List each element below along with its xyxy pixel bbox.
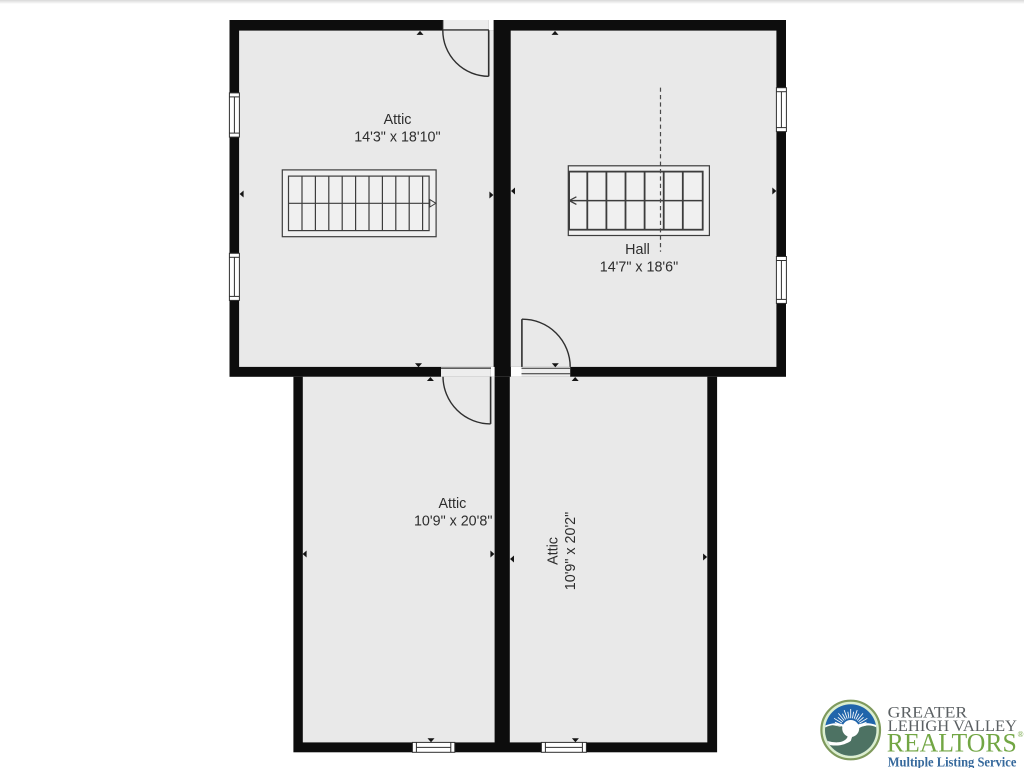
svg-text:Multiple Listing Service: Multiple Listing Service <box>888 755 1017 768</box>
svg-text:Attic: Attic <box>384 112 412 128</box>
svg-text:Attic: Attic <box>546 537 562 565</box>
svg-text:14'7" x 18'6": 14'7" x 18'6" <box>600 259 678 275</box>
svg-text:®: ® <box>1018 730 1024 739</box>
svg-text:Attic: Attic <box>438 496 466 512</box>
svg-text:14'3" x 18'10": 14'3" x 18'10" <box>354 130 440 146</box>
svg-text:10'9" x 20'2": 10'9" x 20'2" <box>563 512 579 590</box>
svg-text:10'9" x 20'8": 10'9" x 20'8" <box>414 514 492 530</box>
svg-text:REALTORS: REALTORS <box>887 729 1017 758</box>
svg-text:Hall: Hall <box>625 242 650 258</box>
